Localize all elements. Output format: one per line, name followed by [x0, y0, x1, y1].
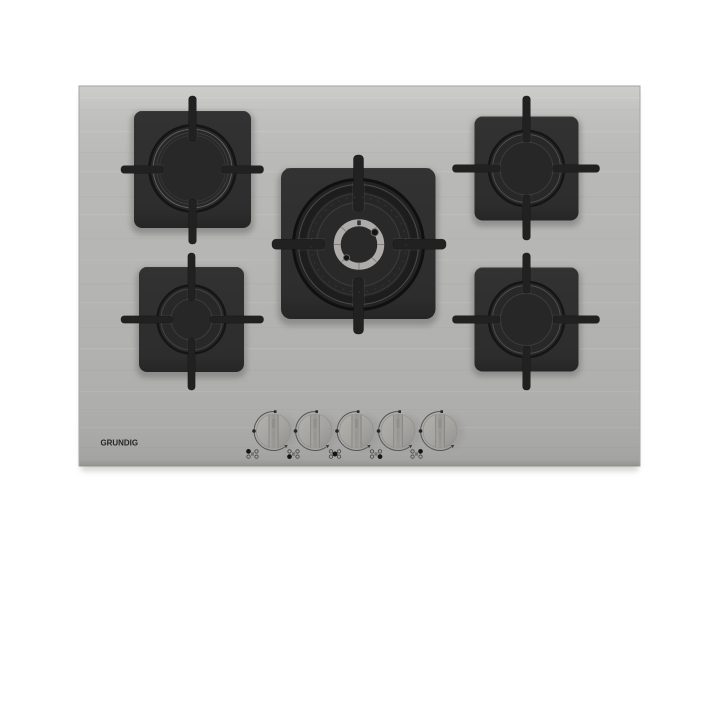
svg-text:GRUNDIG: GRUNDIG — [101, 438, 139, 447]
